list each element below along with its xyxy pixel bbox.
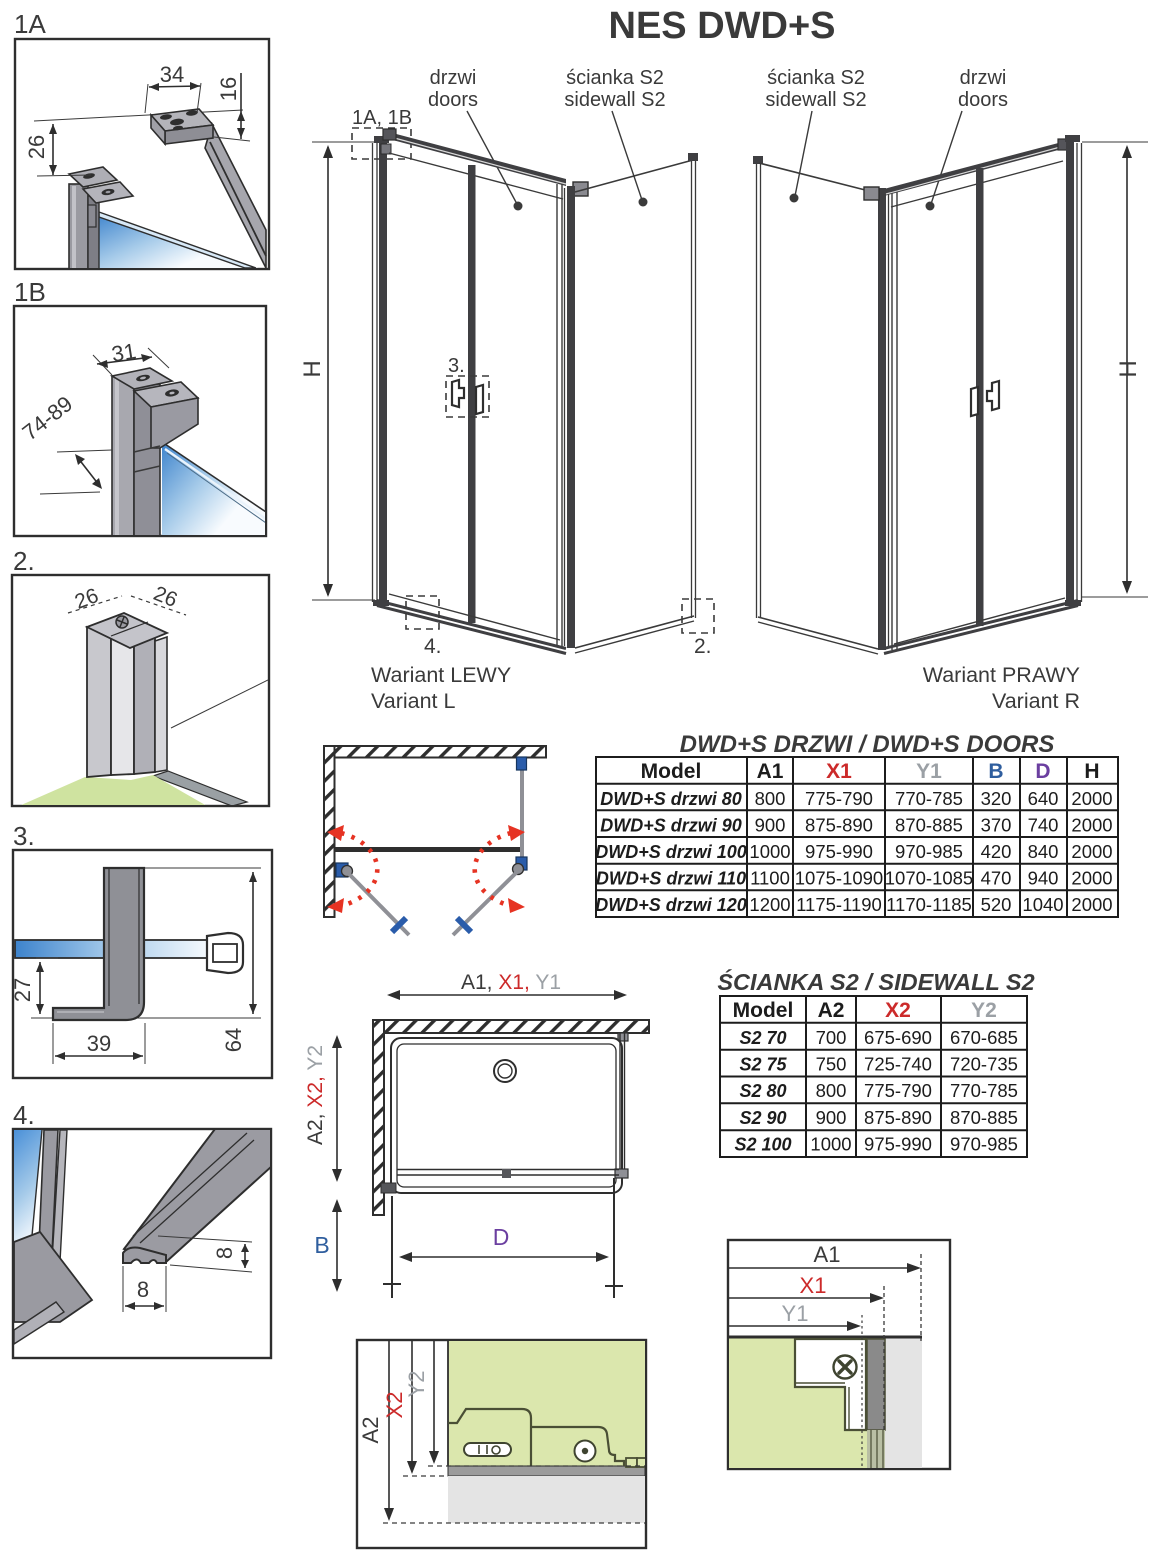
svg-text:X1: X1 — [826, 760, 852, 783]
svg-text:840: 840 — [1028, 841, 1059, 862]
svg-text:D: D — [1035, 760, 1050, 783]
svg-text:2000: 2000 — [1071, 788, 1112, 809]
svg-text:975-990: 975-990 — [805, 841, 873, 862]
svg-text:S2 75: S2 75 — [739, 1055, 787, 1075]
svg-text:900: 900 — [816, 1107, 847, 1128]
svg-text:640: 640 — [1028, 788, 1059, 809]
svg-text:S2 90: S2 90 — [739, 1108, 786, 1128]
svg-text:725-740: 725-740 — [864, 1054, 932, 1075]
svg-text:3.: 3. — [448, 355, 465, 377]
svg-text:970-985: 970-985 — [950, 1134, 1018, 1155]
svg-text:A1, X1, Y1: A1, X1, Y1 — [461, 971, 561, 994]
svg-text:drzwi: drzwi — [960, 67, 1007, 89]
svg-text:Wariant LEWY: Wariant LEWY — [371, 663, 511, 687]
svg-text:Y2: Y2 — [404, 1371, 429, 1398]
svg-text:320: 320 — [981, 788, 1012, 809]
svg-text:4.: 4. — [13, 1100, 35, 1130]
svg-text:1100: 1100 — [750, 868, 790, 889]
svg-text:S2 70: S2 70 — [739, 1028, 786, 1048]
svg-text:470: 470 — [981, 868, 1012, 889]
svg-text:ŚCIANKA S2 / SIDEWALL S2: ŚCIANKA S2 / SIDEWALL S2 — [717, 968, 1034, 995]
svg-text:A1: A1 — [757, 760, 784, 783]
svg-text:1000: 1000 — [810, 1134, 851, 1155]
svg-text:DWD+S drzwi 120: DWD+S drzwi 120 — [595, 895, 747, 915]
svg-text:B: B — [988, 760, 1003, 783]
svg-text:775-790: 775-790 — [864, 1080, 932, 1101]
svg-text:4.: 4. — [424, 635, 442, 658]
svg-text:D: D — [493, 1224, 510, 1250]
svg-text:B: B — [314, 1232, 329, 1258]
svg-text:3.: 3. — [13, 821, 35, 851]
svg-text:A2: A2 — [818, 999, 845, 1022]
svg-text:Model: Model — [641, 760, 702, 783]
svg-text:2000: 2000 — [1071, 841, 1112, 862]
svg-text:775-790: 775-790 — [805, 788, 873, 809]
svg-text:S2 100: S2 100 — [734, 1135, 791, 1155]
svg-text:1040: 1040 — [1022, 894, 1063, 915]
svg-text:1200: 1200 — [749, 894, 790, 915]
svg-text:Variant R: Variant R — [992, 689, 1080, 713]
svg-text:A1: A1 — [814, 1242, 841, 1267]
svg-text:720-735: 720-735 — [950, 1054, 1018, 1075]
svg-text:doors: doors — [958, 89, 1008, 111]
svg-text:1000: 1000 — [749, 841, 790, 862]
svg-text:1070-1085: 1070-1085 — [885, 868, 973, 889]
svg-text:900: 900 — [755, 815, 786, 836]
svg-text:ścianka S2: ścianka S2 — [566, 67, 664, 89]
svg-text:675-690: 675-690 — [864, 1027, 932, 1048]
svg-text:1175-1190: 1175-1190 — [796, 894, 882, 915]
svg-text:875-890: 875-890 — [805, 815, 873, 836]
svg-text:1A, 1B: 1A, 1B — [352, 107, 412, 129]
svg-text:1170-1185: 1170-1185 — [886, 894, 972, 915]
svg-text:770-785: 770-785 — [950, 1080, 1018, 1101]
svg-text:875-890: 875-890 — [864, 1107, 932, 1128]
svg-text:sidewall S2: sidewall S2 — [765, 89, 866, 111]
svg-text:64: 64 — [221, 1028, 246, 1052]
svg-text:ścianka S2: ścianka S2 — [767, 67, 865, 89]
svg-text:670-685: 670-685 — [950, 1027, 1018, 1048]
svg-text:DWD+S drzwi 100: DWD+S drzwi 100 — [595, 842, 747, 862]
svg-text:520: 520 — [981, 894, 1012, 915]
svg-text:Variant L: Variant L — [371, 689, 455, 713]
svg-text:Y2: Y2 — [971, 999, 997, 1022]
svg-text:420: 420 — [981, 841, 1012, 862]
svg-text:Model: Model — [733, 999, 794, 1022]
svg-text:870-885: 870-885 — [895, 815, 963, 836]
svg-text:DWD+S drzwi 90: DWD+S drzwi 90 — [600, 816, 742, 836]
svg-text:700: 700 — [816, 1027, 847, 1048]
svg-text:1B: 1B — [14, 277, 46, 307]
svg-text:770-785: 770-785 — [895, 788, 963, 809]
svg-text:H: H — [1115, 360, 1142, 377]
svg-text:A2: A2 — [358, 1417, 383, 1444]
svg-text:1A: 1A — [14, 9, 46, 39]
svg-text:2.: 2. — [694, 635, 712, 658]
svg-text:sidewall S2: sidewall S2 — [564, 89, 665, 111]
svg-text:800: 800 — [755, 788, 786, 809]
svg-text:800: 800 — [816, 1080, 847, 1101]
svg-text:34: 34 — [160, 62, 184, 87]
svg-text:740: 740 — [1028, 815, 1059, 836]
svg-text:975-990: 975-990 — [864, 1134, 932, 1155]
svg-text:A2, X2, Y2: A2, X2, Y2 — [304, 1045, 327, 1145]
svg-text:750: 750 — [816, 1054, 847, 1075]
svg-text:2000: 2000 — [1071, 868, 1112, 889]
svg-text:NES DWD+S: NES DWD+S — [609, 5, 836, 47]
svg-text:1075-1090: 1075-1090 — [795, 868, 883, 889]
svg-text:16: 16 — [216, 77, 241, 101]
svg-text:970-985: 970-985 — [895, 841, 963, 862]
svg-text:X1: X1 — [800, 1273, 827, 1298]
svg-text:H: H — [299, 360, 326, 377]
svg-text:doors: doors — [428, 89, 478, 111]
svg-text:DWD+S drzwi 110: DWD+S drzwi 110 — [596, 869, 746, 889]
svg-text:370: 370 — [981, 815, 1012, 836]
svg-text:drzwi: drzwi — [430, 67, 477, 89]
svg-text:Y1: Y1 — [916, 760, 942, 783]
svg-text:39: 39 — [87, 1031, 111, 1056]
svg-text:DWD+S drzwi 80: DWD+S drzwi 80 — [600, 789, 742, 809]
svg-text:DWD+S DRZWI / DWD+S DOORS: DWD+S DRZWI / DWD+S DOORS — [680, 731, 1055, 758]
svg-text:8: 8 — [212, 1247, 237, 1259]
svg-text:2.: 2. — [13, 546, 35, 576]
svg-text:2000: 2000 — [1071, 815, 1112, 836]
svg-text:870-885: 870-885 — [950, 1107, 1018, 1128]
svg-text:Y1: Y1 — [782, 1301, 809, 1326]
svg-text:26: 26 — [24, 135, 49, 159]
svg-text:8: 8 — [137, 1277, 149, 1302]
svg-text:S2 80: S2 80 — [739, 1081, 786, 1101]
svg-text:H: H — [1084, 760, 1099, 783]
svg-text:2000: 2000 — [1071, 894, 1112, 915]
svg-text:X2: X2 — [885, 999, 911, 1022]
svg-text:940: 940 — [1028, 868, 1059, 889]
svg-text:Wariant PRAWY: Wariant PRAWY — [923, 663, 1080, 687]
